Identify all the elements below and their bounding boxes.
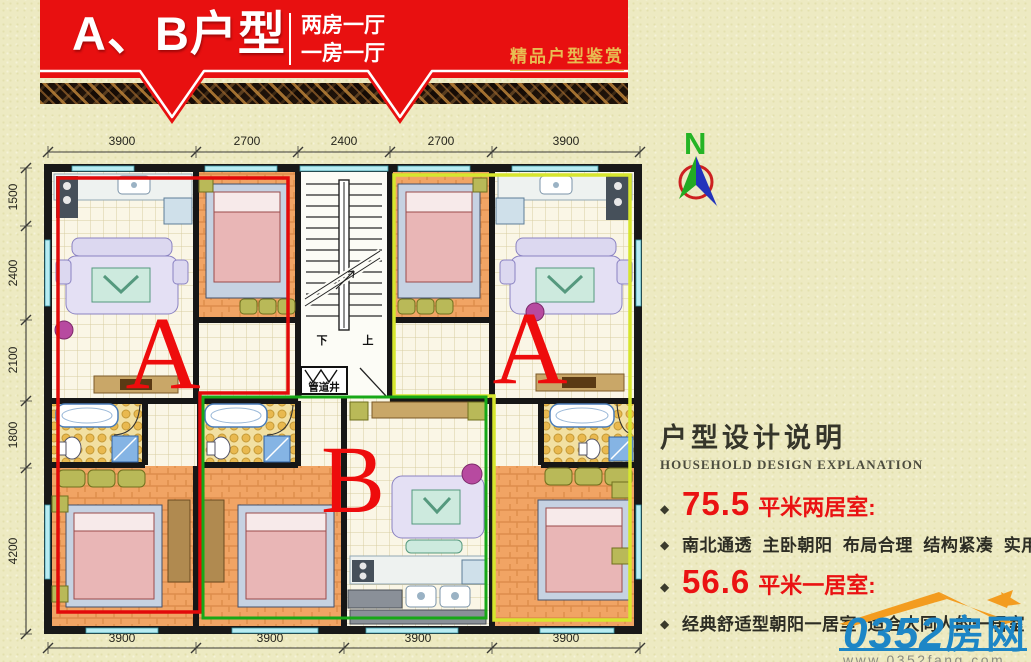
- header-banner: A、B户型 两房一厅 一房一厅 精品户型鉴赏: [40, 0, 628, 132]
- unit-label-b: B: [321, 432, 385, 528]
- dim-top-5: 3900: [553, 134, 580, 148]
- logo-url: www.0352fang.com: [843, 652, 1005, 662]
- area1-value: 75.5: [682, 487, 750, 520]
- unit-label-a-right: A: [492, 297, 567, 401]
- dim-left-2: 2400: [6, 260, 20, 287]
- bedroom-topright: [398, 178, 487, 314]
- bedroom-topleft: [199, 178, 295, 314]
- floorplan-poster: A、B户型 两房一厅 一房一厅 精品户型鉴赏 3900 2700 2400 27…: [0, 0, 1031, 662]
- area2-value: 56.6: [682, 565, 750, 598]
- dim-top-2: 2700: [234, 134, 261, 148]
- stair-up-label: 上: [363, 332, 374, 348]
- site-logo: 0352房网 www.0352fang.com: [835, 588, 1031, 662]
- stair-down-label: 下: [317, 332, 328, 348]
- diamond-bullet-icon: ◆: [660, 580, 682, 594]
- banner-title: A、B户型: [72, 10, 286, 57]
- dim-left-4: 1800: [6, 422, 20, 449]
- north-compass-icon: [679, 156, 717, 206]
- pipe-shaft-label: 管道井: [308, 380, 340, 395]
- dim-bottom-2: 3900: [257, 631, 284, 645]
- banner-divider: [289, 13, 291, 65]
- banner-subtitle-1: 两房一厅: [301, 15, 385, 36]
- logo-underline: [839, 648, 1027, 651]
- dim-top-1: 3900: [109, 134, 136, 148]
- explanation-subtitle: HOUSEHOLD DESIGN EXPLANATION: [660, 457, 1031, 473]
- area-row-1: ◆ 75.5 平米两居室:: [660, 487, 1031, 522]
- dim-bottom-1: 3900: [109, 631, 136, 645]
- area1-label: 平米两居室:: [758, 490, 875, 522]
- dim-left-3: 2100: [6, 347, 20, 374]
- explanation-title: 户型设计说明: [660, 423, 1031, 454]
- diamond-bullet-icon: ◆: [660, 617, 682, 631]
- dim-left-5: 4200: [6, 538, 20, 565]
- banner-tagline: 精品户型鉴赏: [510, 42, 624, 71]
- desc1-text: 南北通透 主卧朝阳 布局合理 结构紧凑 实用性高: [682, 531, 1031, 556]
- dim-bottom-3: 3900: [405, 631, 432, 645]
- banner-subtitle-2: 一房一厅: [301, 43, 385, 64]
- compass-north-label: N: [684, 126, 706, 162]
- dim-bottom-4: 3900: [553, 631, 580, 645]
- dim-left-1: 1500: [6, 184, 20, 211]
- dim-top-3: 2400: [331, 134, 358, 148]
- diamond-bullet-icon: ◆: [660, 502, 682, 516]
- dim-top-4: 2700: [428, 134, 455, 148]
- desc-row-1: ◆ 南北通透 主卧朝阳 布局合理 结构紧凑 实用性高: [660, 531, 1031, 556]
- diamond-bullet-icon: ◆: [660, 538, 682, 552]
- unit-label-a-left: A: [125, 302, 200, 406]
